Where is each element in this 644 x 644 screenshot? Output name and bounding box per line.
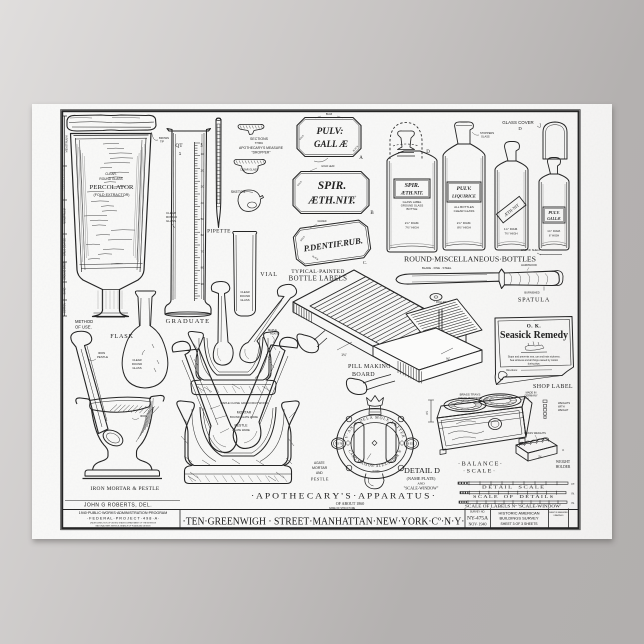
svg-text:10: 10 — [201, 152, 205, 156]
svg-text:(FOLD EXTRACTOR): (FOLD EXTRACTOR) — [94, 193, 130, 197]
svg-text:"SCALE-WINDOW": "SCALE-WINDOW" — [404, 486, 439, 491]
svg-text:· A P O T H E C A R Y ' S · A: · A P O T H E C A R Y ' S · A P P A R A … — [251, 492, 435, 501]
svg-text:80: 80 — [201, 266, 205, 270]
svg-text:PULV.: PULV. — [457, 186, 472, 192]
svg-text:PESTLE: PESTLE — [311, 477, 329, 482]
svg-text:JOHN G ROBERTS, DEL.: JOHN G ROBERTS, DEL. — [84, 503, 152, 509]
svg-text:C.: C. — [363, 260, 367, 265]
svg-text:WEIGHT: WEIGHT — [556, 460, 571, 464]
svg-text:GOLD LEAF: GOLD LEAF — [321, 165, 335, 168]
svg-text:GROUND DRUG: GROUND DRUG — [65, 262, 67, 280]
svg-text:MAPLE CLOSE GRAIN FRUITWOOD: MAPLE CLOSE GRAIN FRUITWOOD — [220, 401, 267, 405]
svg-text:MORTAR: MORTAR — [237, 411, 252, 415]
svg-text:· F E D E R A L · P R O J E C: · F E D E R A L · P R O J E C T · 4 9 8 … — [87, 517, 159, 521]
svg-text:8 ESL.: 8 ESL. — [408, 444, 415, 446]
svg-text:ROUND·MISCELLANEOUS·BOTTLES: ROUND·MISCELLANEOUS·BOTTLES — [404, 255, 536, 264]
svg-text:6" HIGH: 6" HIGH — [549, 234, 559, 238]
svg-text:DETAIL D: DETAIL D — [404, 466, 441, 475]
svg-text:GLASS COVER: GLASS COVER — [502, 120, 533, 125]
svg-text:·TEN·GREENWIGH · STREET·MANHAT: ·TEN·GREENWIGH · STREET·MANHATTAN·NEW·YO… — [183, 517, 465, 528]
svg-text:S C A L E O F D E T A I L S: S C A L E O F D E T A I L S — [473, 494, 554, 499]
svg-text:QT: QT — [175, 143, 183, 149]
svg-text:1940·PUBLIC·WORKS·ADMINISTRATI: 1940·PUBLIC·WORKS·ADMINISTRATION·PROGRAM — [79, 511, 167, 515]
svg-text:GLASS: GLASS — [372, 470, 380, 473]
svg-text:IRON MORTAR & PESTLE: IRON MORTAR & PESTLE — [91, 486, 160, 492]
svg-text:SCALE OF LABELS Nº 'SCALE-WIND: SCALE OF LABELS Nº 'SCALE-WINDOW' — [465, 504, 562, 508]
svg-text:SPIR.: SPIR. — [405, 183, 420, 189]
svg-text:BLADE · FINE · STEEL: BLADE · FINE · STEEL — [422, 266, 452, 270]
svg-text:Directions:: Directions: — [506, 369, 518, 372]
svg-text:SURVEY NO.: SURVEY NO. — [470, 511, 486, 514]
svg-text:30: 30 — [201, 185, 205, 189]
svg-text:BRASS TRAYS: BRASS TRAYS — [460, 393, 481, 397]
svg-text:BOUND AGATE WARE: BOUND AGATE WARE — [230, 415, 258, 419]
svg-text:GILDED: GILDED — [318, 220, 327, 223]
svg-text:ROLLER: ROLLER — [436, 300, 447, 304]
svg-text:IN.: IN. — [572, 493, 576, 496]
svg-text:BURNISHED: BURNISHED — [524, 291, 539, 295]
svg-text:OF ABOUT 1860: OF ABOUT 1860 — [336, 501, 365, 506]
svg-text:BRASS WEIGHTS: BRASS WEIGHTS — [524, 431, 546, 435]
svg-text:MENSTRUUM: MENSTRUUM — [64, 208, 67, 224]
svg-text:TIP: TIP — [160, 140, 164, 144]
svg-text:ÆTH.NIT.: ÆTH.NIT. — [308, 196, 356, 207]
svg-text:8½" HIGH: 8½" HIGH — [457, 226, 471, 230]
svg-text:IRON: IRON — [140, 414, 147, 418]
svg-text:FLASK: FLASK — [110, 333, 134, 340]
svg-text:· S C A L E ·: · S C A L E · — [463, 469, 495, 475]
svg-text:AGATE WARE: AGATE WARE — [232, 428, 250, 432]
svg-text:OF USE.: OF USE. — [75, 325, 92, 330]
svg-text:90: 90 — [201, 282, 205, 286]
svg-text:SPIR.: SPIR. — [318, 180, 346, 192]
svg-text:2¾" DIAM.: 2¾" DIAM. — [457, 221, 472, 225]
svg-text:SHEET 3 OF 3 SHEETS: SHEET 3 OF 3 SHEETS — [500, 522, 538, 526]
svg-text:THRU: THRU — [255, 141, 264, 145]
svg-text:7½" HIGH: 7½" HIGH — [504, 232, 517, 236]
svg-text:GERMANY: GERMANY — [524, 394, 537, 398]
svg-text:during trips.: during trips. — [528, 363, 541, 366]
svg-text:1¾": 1¾" — [341, 353, 347, 357]
svg-text:HOLDER: HOLDER — [556, 465, 571, 469]
svg-text:SAND: SAND — [64, 287, 67, 294]
svg-text:STOPPERS: STOPPERS — [480, 131, 494, 135]
svg-text:70: 70 — [201, 249, 205, 253]
svg-text:PILL MAKING: PILL MAKING — [348, 364, 391, 370]
svg-text:BOTTLE: BOTTLE — [407, 207, 418, 211]
svg-text:(NAME PLATE): (NAME PLATE) — [407, 476, 436, 481]
svg-text:BROWN: BROWN — [159, 136, 169, 140]
svg-text:MENSTRUUM: MENSTRUUM — [65, 136, 69, 153]
svg-text:20: 20 — [201, 168, 205, 172]
svg-text:GLASS: GLASS — [481, 135, 490, 139]
svg-text:BUILDINGS SURVEY: BUILDINGS SURVEY — [499, 516, 538, 521]
svg-text:GALL Æ: GALL Æ — [314, 139, 348, 149]
svg-text:Seasick Remedy: Seasick Remedy — [500, 330, 569, 341]
svg-text:NATIONAL PARK SERVICE, BRANCH: NATIONAL PARK SERVICE, BRANCH OF PLANS A… — [96, 525, 151, 528]
svg-text:D E T A I L S C A L E: D E T A I L S C A L E — [482, 485, 545, 490]
svg-text:"DROPPER": "DROPPER" — [251, 150, 271, 154]
svg-text:1¾" DIAM.: 1¾" DIAM. — [547, 229, 561, 233]
svg-text:783·78: 783·78 — [335, 444, 343, 446]
svg-text:O. K.: O. K. — [527, 324, 542, 330]
svg-text:LINE OF SHELF: LINE OF SHELF — [521, 248, 541, 252]
svg-text:DRAWINGS: DRAWINGS — [554, 514, 565, 517]
svg-text:· B A L A N C E ·: · B A L A N C E · — [458, 462, 502, 468]
svg-text:GRADUATE: GRADUATE — [166, 318, 211, 325]
svg-text:40: 40 — [201, 201, 205, 205]
svg-text:BULB: BULB — [326, 113, 333, 116]
svg-text:SHEET IS MEASURED: SHEET IS MEASURED — [549, 511, 569, 514]
svg-text:WITH: WITH — [558, 405, 565, 409]
svg-text:2¾" DIAM.: 2¾" DIAM. — [405, 221, 420, 225]
svg-text:CLEAR GLASS: CLEAR GLASS — [240, 168, 258, 172]
svg-text:AGATE: AGATE — [314, 461, 325, 465]
svg-text:SHOP LABEL: SHOP LABEL — [533, 384, 573, 390]
svg-text:GLASS: GLASS — [132, 366, 141, 370]
svg-text:50: 50 — [201, 217, 205, 221]
svg-text:TYPICAL·PAINTED: TYPICAL·PAINTED — [291, 269, 344, 275]
svg-text:APOTHECARY'S MEASURE: APOTHECARY'S MEASURE — [239, 146, 284, 150]
svg-text:ÆTH.NIT.: ÆTH.NIT. — [400, 192, 423, 197]
svg-text:LIQUIRICE: LIQUIRICE — [451, 194, 476, 199]
svg-text:7½" HIGH: 7½" HIGH — [405, 226, 419, 230]
svg-text:CLEAR GLASS: CLEAR GLASS — [454, 209, 475, 213]
svg-text:IN.: IN. — [572, 502, 576, 505]
svg-text:PESTLE: PESTLE — [234, 424, 248, 428]
svg-text:GLASS: GLASS — [166, 219, 176, 223]
svg-text:BOTTLE LABELS: BOTTLE LABELS — [289, 276, 348, 283]
svg-text:PULV:: PULV: — [317, 127, 344, 137]
svg-text:COTTON: COTTON — [64, 303, 67, 313]
svg-text:PESTLE: PESTLE — [97, 355, 108, 359]
svg-text:PULV.: PULV. — [548, 210, 560, 215]
svg-text:VIAL: VIAL — [260, 272, 278, 278]
svg-text:WEIGHT: WEIGHT — [558, 408, 569, 412]
svg-text:METHOD: METHOD — [75, 319, 93, 324]
svg-text:CLEAR.: CLEAR. — [105, 172, 117, 176]
svg-text:DRUG COARSE: DRUG COARSE — [64, 238, 67, 256]
svg-text:UNDER DIRECTION OF UNITED STAT: UNDER DIRECTION OF UNITED STATES DEPARTM… — [90, 522, 157, 525]
svg-text:SPATULA: SPATULA — [518, 297, 550, 304]
svg-text:A: A — [359, 156, 363, 161]
svg-text:MORTAR: MORTAR — [312, 466, 328, 470]
svg-text:60: 60 — [201, 233, 205, 237]
svg-text:NOV·1940: NOV·1940 — [469, 522, 487, 527]
svg-text:WEIGHTS: WEIGHTS — [558, 401, 570, 405]
svg-text:ALCOHOL & WATER: ALCOHOL & WATER — [62, 167, 65, 190]
svg-text:ROUND GLASS: ROUND GLASS — [99, 177, 122, 181]
svg-text:PERCOLATOR: PERCOLATOR — [90, 185, 134, 191]
svg-text:GALLÆ: GALLÆ — [547, 217, 561, 221]
svg-text:(ON ALL BORDERS): (ON ALL BORDERS) — [458, 396, 482, 400]
svg-text:1¾" DIAM.: 1¾" DIAM. — [504, 227, 518, 231]
svg-text:GLASS: GLASS — [240, 298, 249, 302]
svg-text:4½: 4½ — [425, 410, 429, 415]
svg-text:HARDWOOD: HARDWOOD — [521, 263, 537, 267]
svg-text:PIPETTE: PIPETTE — [207, 229, 231, 235]
svg-text:BOARD: BOARD — [352, 372, 375, 378]
svg-text:AND: AND — [316, 471, 323, 475]
svg-text:FT.: FT. — [572, 483, 576, 486]
